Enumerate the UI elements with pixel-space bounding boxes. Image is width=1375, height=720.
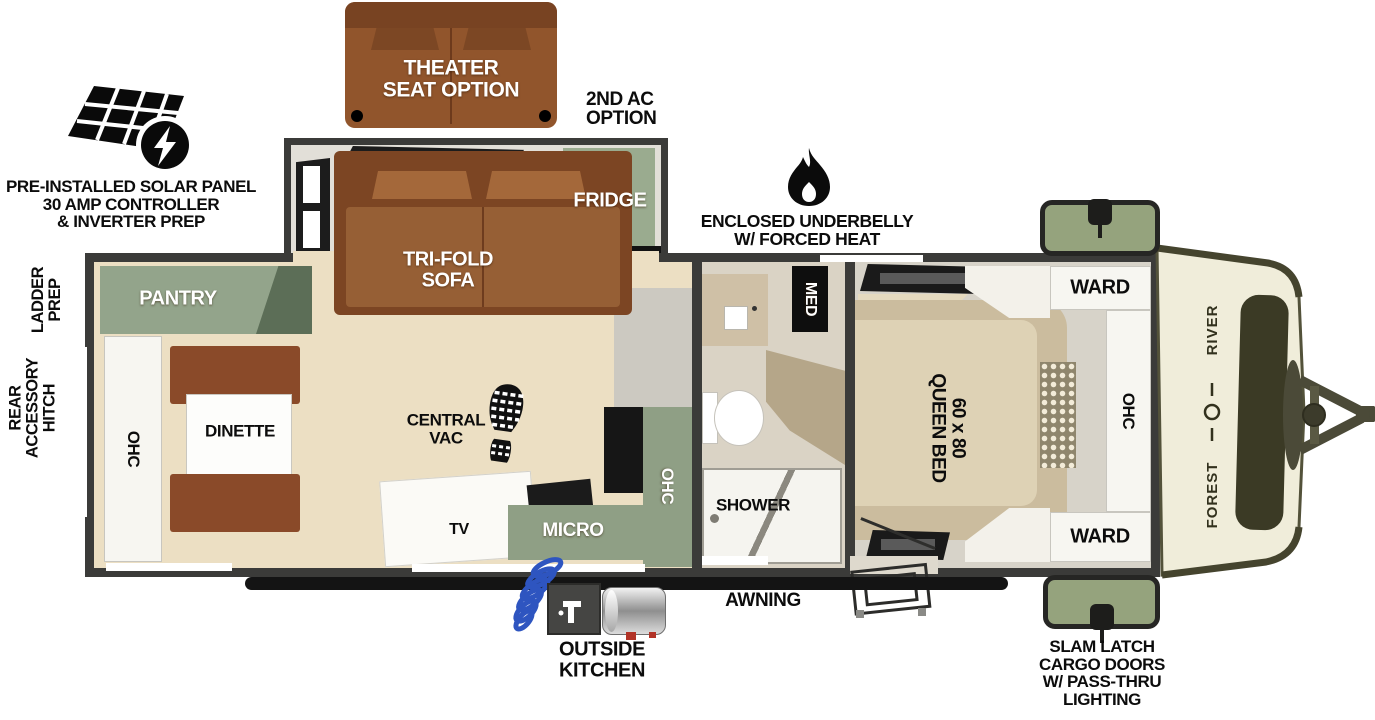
awning-label: AWNING bbox=[725, 591, 801, 611]
outside-kitchen-box bbox=[547, 583, 601, 635]
rear-ohc-label: OHC bbox=[124, 431, 142, 468]
cargo-door-front-top bbox=[1040, 200, 1160, 256]
tv-label: TV bbox=[449, 522, 469, 538]
dinette-bench-bottom bbox=[170, 474, 300, 532]
tank-valve-red-2 bbox=[649, 632, 656, 638]
bedroom-ohc-label: OHC bbox=[1119, 393, 1137, 430]
rear-wall-window bbox=[81, 347, 87, 517]
bath-sink bbox=[724, 306, 748, 330]
bedroom-wall-left bbox=[845, 253, 855, 577]
theater-cupholder-right bbox=[539, 110, 551, 122]
bottom-wall-window-3 bbox=[702, 556, 768, 565]
pantry-label: PANTRY bbox=[139, 289, 217, 310]
fridge-label: FRIDGE bbox=[573, 191, 646, 212]
theater-seat-headrest-right bbox=[463, 28, 531, 50]
floorplan-page: { "callouts": { "theater_seat": "THEATER… bbox=[0, 0, 1375, 720]
outside-kitchen-tank bbox=[602, 587, 666, 635]
bath-faucet-dot bbox=[752, 306, 757, 311]
hitch-jack-wheel-icon bbox=[1303, 404, 1325, 426]
wardrobe-bottom-label: WARD bbox=[1070, 527, 1130, 548]
dinette-label: DINETTE bbox=[205, 422, 275, 440]
ladder-prep-label: LADDER PREP bbox=[30, 267, 64, 333]
theater-seat-back bbox=[345, 2, 557, 28]
underbelly-label: ENCLOSED UNDERBELLY W/ FORCED HEAT bbox=[701, 212, 913, 248]
second-ac-label: 2ND AC OPTION bbox=[586, 90, 656, 129]
shower-pan bbox=[702, 468, 842, 564]
slideout-left-window bbox=[296, 158, 330, 260]
front-cap-window bbox=[1235, 294, 1289, 530]
micro-label: MICRO bbox=[542, 521, 603, 541]
kitchen-ohc-label: OHC bbox=[658, 468, 676, 505]
slam-latch-label: SLAM LATCH CARGO DOORS W/ PASS-THRU LIGH… bbox=[1039, 638, 1165, 708]
shower-label: SHOWER bbox=[716, 496, 790, 514]
toilet-bowl bbox=[714, 390, 764, 446]
solar-prep-label: PRE-INSTALLED SOLAR PANEL 30 AMP CONTROL… bbox=[6, 178, 256, 231]
cargo-door-front-bottom bbox=[1043, 575, 1160, 629]
entry-steps bbox=[846, 564, 940, 618]
faucet-icon bbox=[557, 593, 591, 627]
shower-head-dot bbox=[710, 514, 719, 523]
brand-word-forest: FOREST bbox=[1204, 462, 1221, 529]
hitch-assembly bbox=[1283, 360, 1375, 470]
queen-bed-label: 60 x 80 QUEEN BED bbox=[928, 373, 967, 482]
cargo-latch-bottom bbox=[1090, 604, 1114, 630]
cargo-latch-top bbox=[1088, 199, 1112, 225]
theater-cupholder-left bbox=[351, 110, 363, 122]
front-cap: FOREST RIVER bbox=[1150, 240, 1375, 585]
med-label: MED bbox=[802, 282, 818, 316]
flame-icon bbox=[786, 148, 832, 206]
bottom-wall-window-1 bbox=[106, 563, 232, 571]
outside-kitchen-label: OUTSIDE KITCHEN bbox=[559, 639, 645, 680]
stove bbox=[604, 407, 646, 493]
bath-wall-left bbox=[692, 253, 702, 577]
theater-seat-label: THEATER SEAT OPTION bbox=[383, 57, 519, 100]
rear-accessory-hitch-label: REAR ACCESSORY HITCH bbox=[8, 358, 59, 458]
tri-fold-sofa-label: TRI-FOLD SOFA bbox=[403, 249, 493, 290]
bed-headboard bbox=[1040, 362, 1076, 468]
theater-seat-headrest-left bbox=[371, 28, 439, 50]
central-vac-label: CENTRAL VAC bbox=[407, 412, 485, 447]
wardrobe-top-label: WARD bbox=[1070, 278, 1130, 299]
brand-word-river: RIVER bbox=[1204, 305, 1221, 356]
solar-panel-icon bbox=[66, 84, 192, 176]
top-wall-window bbox=[820, 255, 923, 262]
